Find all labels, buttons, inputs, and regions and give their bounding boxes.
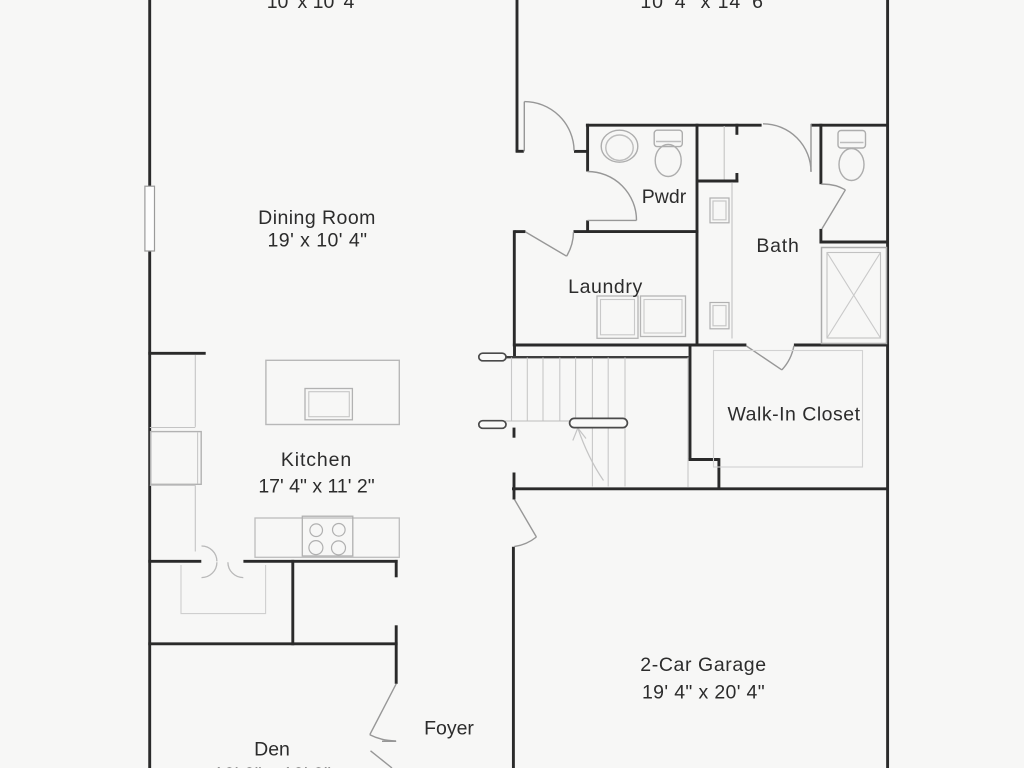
- svg-text:10' 4" x 14' 6": 10' 4" x 14' 6": [640, 0, 771, 13]
- svg-text:Kitchen: Kitchen: [281, 449, 352, 471]
- svg-text:19' x 10' 4": 19' x 10' 4": [268, 230, 368, 252]
- svg-text:Den: Den: [254, 739, 290, 761]
- svg-text:Walk-In Closet: Walk-In Closet: [727, 404, 860, 426]
- svg-text:13' 0" x 10' 8": 13' 0" x 10' 8": [213, 764, 331, 768]
- svg-text:Bath: Bath: [756, 235, 799, 257]
- svg-text:Foyer: Foyer: [424, 718, 474, 740]
- svg-text:2-Car Garage: 2-Car Garage: [640, 654, 766, 676]
- svg-text:10' x 10' 4": 10' x 10' 4": [267, 0, 362, 13]
- svg-text:Dining Room: Dining Room: [258, 207, 376, 229]
- svg-text:17' 4" x 11' 2": 17' 4" x 11' 2": [258, 476, 374, 498]
- svg-text:Pwdr: Pwdr: [642, 186, 687, 208]
- svg-text:19' 4" x 20' 4": 19' 4" x 20' 4": [642, 682, 765, 704]
- svg-text:Laundry: Laundry: [568, 276, 643, 298]
